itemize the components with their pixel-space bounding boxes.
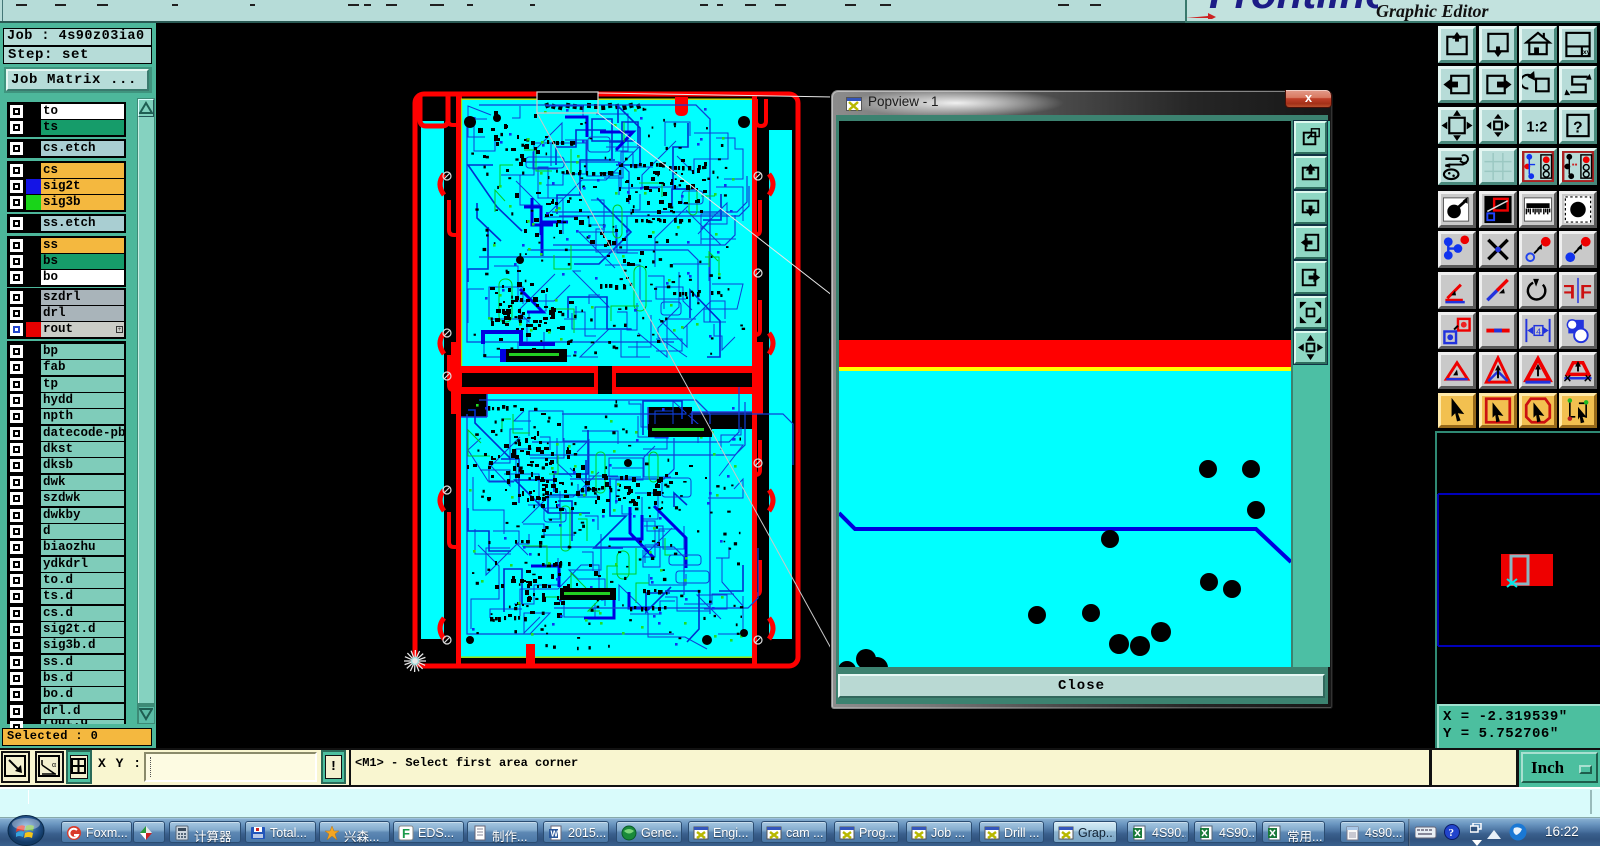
svg-text:?: ? <box>1573 119 1582 136</box>
svg-text:F: F <box>402 826 410 841</box>
svg-text:α: α <box>52 762 56 769</box>
svg-text:?: ? <box>1449 827 1455 839</box>
svg-text:F: F <box>1580 281 1592 303</box>
svg-text:W: W <box>551 830 559 839</box>
svg-text:1:2: 1:2 <box>1526 119 1547 135</box>
svg-text:F: F <box>1563 281 1575 303</box>
svg-text:4: 4 <box>1536 326 1541 336</box>
svg-text:xy: xy <box>1583 49 1591 56</box>
